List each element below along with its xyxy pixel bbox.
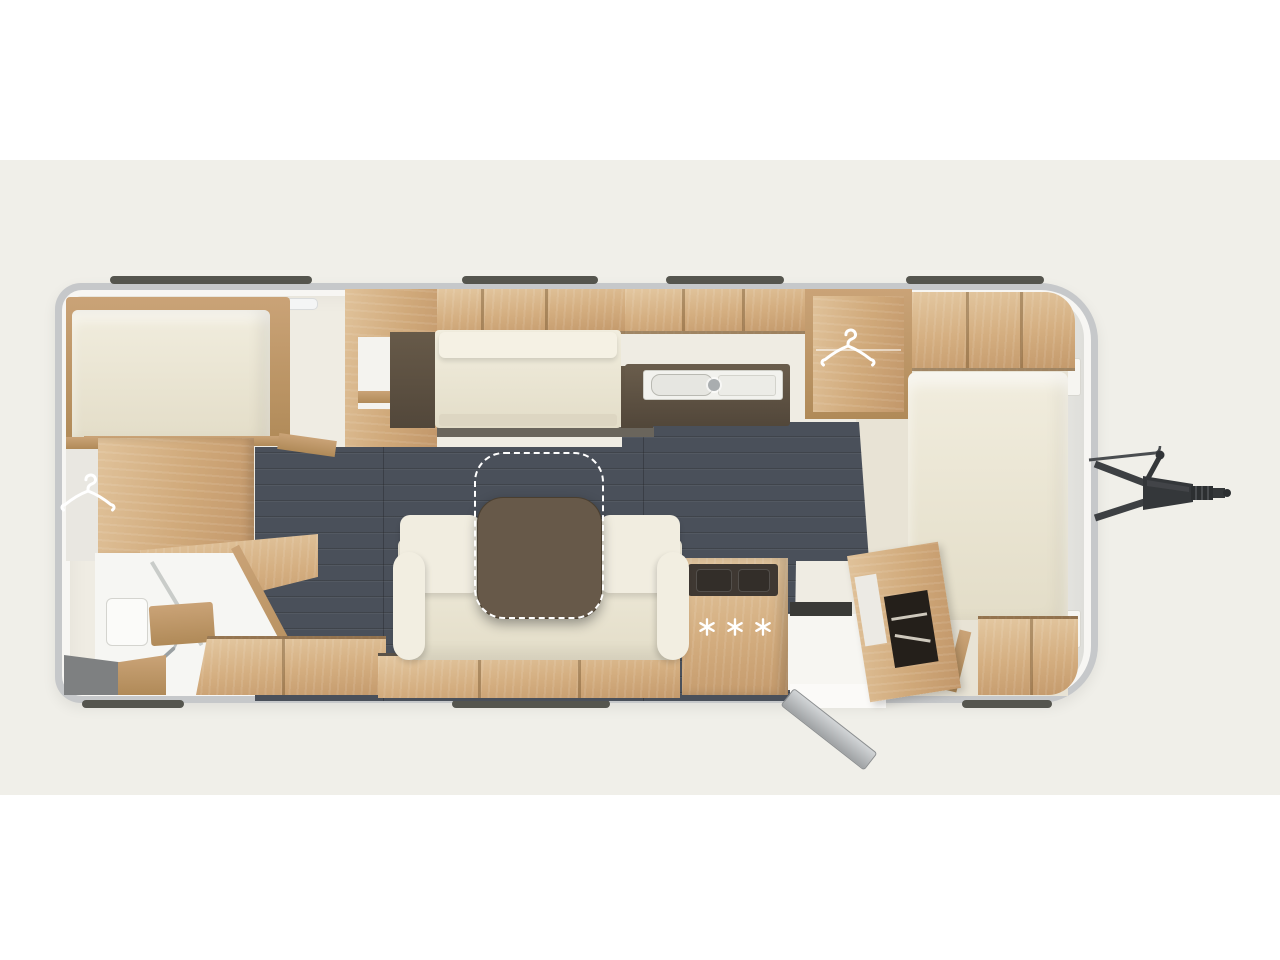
tall-cabinet-interior: [884, 590, 939, 668]
overhead-locker-row-kitchen: [625, 289, 805, 334]
front-bottom-cabinets: [978, 616, 1078, 695]
sink-drainer: [718, 375, 776, 396]
cooktop: [688, 564, 778, 596]
roof-rail-bottom-2: [452, 700, 610, 708]
rear-wardrobe-shelf: [66, 437, 98, 449]
overhead-locker-row-left: [437, 289, 625, 334]
roof-rail-bottom-3: [962, 700, 1052, 708]
tall-cabinet-door-panel: [854, 574, 887, 647]
bench-divider: [282, 639, 285, 695]
locker-divider: [1030, 619, 1033, 695]
dinette-bench-front: [439, 414, 617, 426]
locker-divider: [682, 289, 685, 331]
dinette-bench-backrest: [439, 332, 617, 358]
burner-icon: [698, 618, 716, 636]
floorplan-stage: [0, 0, 1280, 960]
roof-rail-top-1: [110, 276, 312, 284]
locker-divider: [966, 292, 969, 368]
roof-rail-top-3: [666, 276, 784, 284]
door-step-well: [790, 602, 852, 616]
rear-storage-block: [98, 438, 254, 557]
handbrake-lever: [1147, 458, 1159, 480]
rear-bed-mattress: [72, 310, 270, 442]
dinette-bench: [435, 330, 621, 428]
burner-icon: [754, 618, 772, 636]
sofa-base-seam: [578, 656, 581, 698]
cabinet-shelf-line: [891, 612, 927, 621]
cabinet-shelf-line: [895, 634, 931, 643]
locker-divider: [545, 289, 548, 331]
front-overhead-cabinets: [912, 292, 1075, 371]
table-extension-outline: [474, 452, 604, 619]
roof-rail-bottom-1: [82, 700, 184, 708]
bench-side-cabinet-left: [390, 332, 435, 428]
sofa-base-seam: [478, 656, 481, 698]
locker-divider: [481, 289, 484, 331]
cooktop-burner-plate: [738, 569, 770, 592]
burner-icon: [726, 618, 744, 636]
locker-divider: [1020, 292, 1023, 368]
entry-step-block: [149, 602, 216, 646]
locker-divider: [742, 289, 745, 331]
sofa-armrest-right: [657, 552, 689, 660]
breakaway-cable: [1089, 453, 1155, 460]
roof-rail-top-2: [462, 276, 598, 284]
sink-bowl: [651, 374, 713, 396]
tow-hitch: [1085, 440, 1235, 555]
hanger-icon: [818, 324, 878, 370]
kitchen-sink-unit: [643, 370, 783, 400]
sofa-armrest-left: [393, 552, 425, 660]
faucet: [708, 379, 720, 391]
hanger-icon: [58, 468, 118, 516]
bottom-bench: [196, 636, 386, 695]
roof-rail-top-4: [906, 276, 1044, 284]
cooktop-burner-plate: [696, 569, 732, 592]
